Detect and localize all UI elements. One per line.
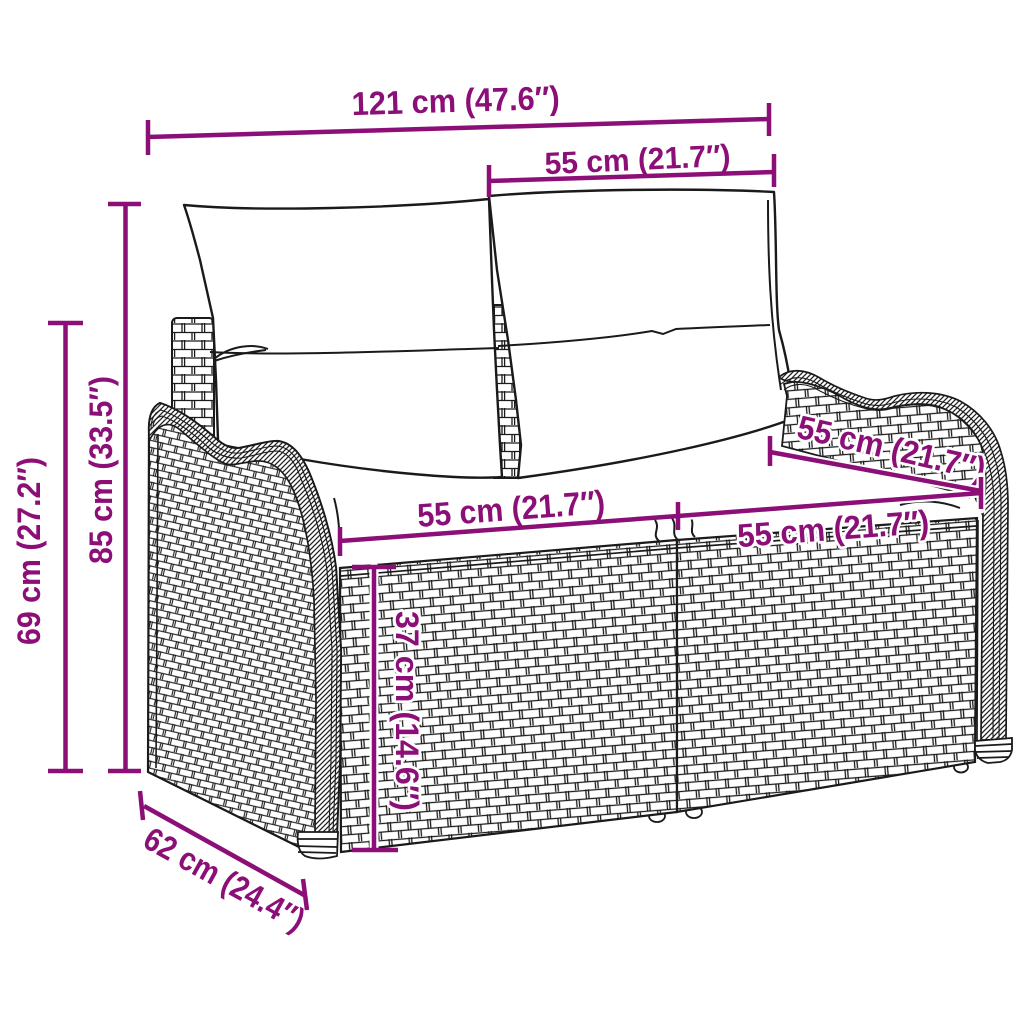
svg-text:37 cm (14.6″): 37 cm (14.6″) <box>389 611 425 811</box>
svg-text:121 cm (47.6″): 121 cm (47.6″) <box>351 79 560 122</box>
svg-text:85 cm (33.5″): 85 cm (33.5″) <box>83 376 119 564</box>
svg-text:69 cm (27.2″): 69 cm (27.2″) <box>11 457 47 645</box>
